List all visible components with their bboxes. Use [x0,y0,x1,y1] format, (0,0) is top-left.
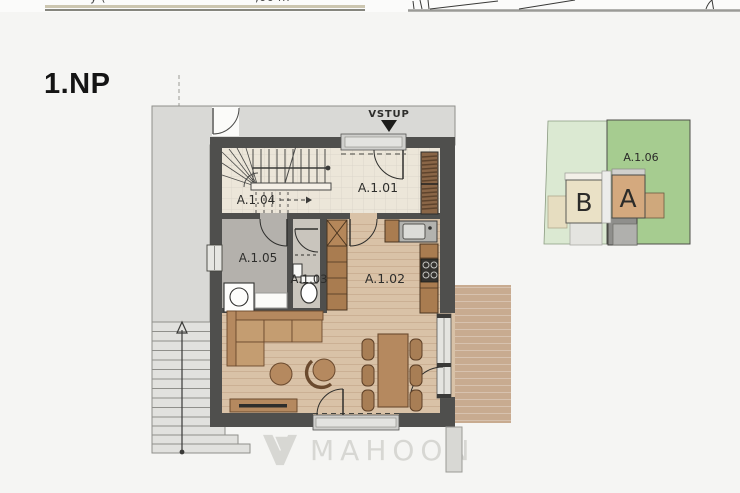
siteplan-drawing: A.1.06 B A [535,110,700,250]
site-divider [602,171,611,223]
room-label-a105: A.1.05 [239,251,278,265]
dining-chair [410,339,422,360]
kitchen-sink [399,221,437,242]
dining-chair [362,339,374,360]
floor-title: 1.NP [44,68,110,101]
washing-machine [224,283,254,312]
counter-top [385,220,399,242]
site-annex-right [645,193,664,218]
site-annex-left [548,196,567,228]
toilet-bowl [301,283,317,303]
tall-cabinet [327,220,347,246]
room-label-a101: A.1.01 [358,180,398,195]
side-table [270,363,292,385]
tv-stand [230,399,297,412]
site-building-b-label: B [575,188,592,217]
elevation-sketch-fragment [400,0,740,14]
entrance-label: VSTUP [368,109,409,120]
table-edge-line-gray [45,9,365,11]
dining-chair [362,390,374,411]
window-left [207,245,222,271]
clipped-header-text: y ( ,00 m [60,0,370,5]
cabinet-left-column [327,246,347,310]
terrace [455,285,511,423]
exterior-wall-stub [446,427,462,472]
dining-chair [410,390,422,411]
tv [239,404,287,408]
dining-chair [410,365,422,386]
room-label-a102: A.1.02 [365,271,405,286]
dining-set [362,334,422,411]
table-edge-line-tan [45,5,365,8]
wardrobe [421,152,438,214]
dining-chair [362,365,374,386]
site-parcel-label: A.1.06 [623,151,658,164]
site-terrace-b [570,223,602,245]
site-building-a-label: A [619,184,636,213]
clipped-text-right: ,00 m [255,0,290,4]
dining-table [378,334,408,407]
clipped-text-left: y ( [90,0,106,4]
room-label-a104: A.1.04 [237,193,276,207]
room-label-a103: A.1.03 [291,272,328,286]
tech-counter [255,293,287,308]
walkway-door [212,107,239,136]
site-terrace-a [608,218,637,245]
table-edge-fragment [45,5,365,12]
page: y ( ,00 m 1.NP MAHOON [0,0,740,493]
floorplan-drawing: VSTUP A.1.01 A.1.02 A.1.03 A.1.04 A.1.05 [140,70,520,480]
stove [421,259,438,282]
